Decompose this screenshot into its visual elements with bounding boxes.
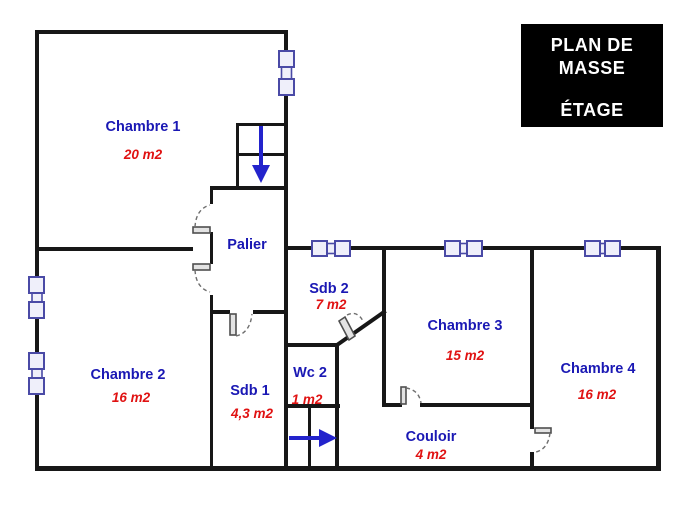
window-icon-chambre2-lower — [29, 353, 44, 394]
room-label-chambre1: Chambre 1 — [106, 119, 181, 135]
door-icon-chambre4 — [535, 428, 551, 452]
room-area-chambre1: 20 m2 — [123, 147, 163, 162]
room-area-sdb2: 7 m2 — [316, 297, 347, 312]
window-pane — [279, 79, 294, 95]
room-labels: Chambre 1 20 m2 Chambre 2 16 m2 Palier S… — [91, 119, 636, 462]
door-icon-sdb2 — [339, 313, 363, 340]
door-arc — [347, 313, 363, 321]
wall-palier-bottom-b — [253, 310, 287, 314]
wall-wc2-top — [286, 343, 338, 347]
title-line-2: MASSE — [559, 58, 626, 78]
room-area-chambre4: 16 m2 — [578, 387, 617, 402]
stairs-up-tread-1 — [236, 123, 287, 126]
window-pane — [29, 353, 44, 369]
room-label-chambre4: Chambre 4 — [561, 361, 636, 377]
door-arc — [536, 433, 550, 452]
window-pane — [467, 241, 482, 256]
window-pane — [445, 241, 460, 256]
wall-exterior-right — [656, 246, 661, 471]
door-leaf — [193, 227, 210, 233]
door-icon-chambre3 — [401, 387, 421, 404]
wall-couloir-chambre4-b — [530, 452, 534, 468]
wall-palier-left-b — [210, 232, 213, 264]
door-arc — [195, 270, 210, 292]
window-pane — [279, 51, 294, 67]
wall-palier-bottom-a — [210, 310, 230, 314]
stairs-right-arrow-icon — [289, 429, 337, 447]
wall-chambre1-chambre2 — [35, 247, 193, 251]
wall-wc2-right — [335, 345, 339, 466]
room-area-chambre2: 16 m2 — [112, 390, 151, 405]
wall-chambre3-couloir-a — [382, 403, 402, 407]
room-label-chambre3: Chambre 3 — [428, 318, 503, 334]
door-icon-palier-sdb1 — [230, 314, 252, 336]
door-icon-palier-chambre2 — [193, 264, 210, 292]
door-icon-palier-chambre1 — [193, 205, 210, 233]
door-arc — [195, 205, 210, 227]
room-label-sdb1: Sdb 1 — [230, 383, 269, 399]
door-arc — [406, 388, 421, 403]
window-pane — [29, 378, 44, 394]
window-icon-chambre4 — [585, 241, 620, 256]
wall-sdb2-chambre3 — [382, 248, 386, 407]
window-icon-sdb2 — [312, 241, 350, 256]
window-pane — [29, 302, 44, 318]
door-arc — [236, 314, 252, 336]
window-pane — [585, 241, 600, 256]
wall-exterior-bottom — [35, 466, 661, 471]
room-label-wc2: Wc 2 — [293, 365, 327, 381]
wall-chambre1-top — [35, 30, 288, 34]
wall-palier-left-c — [210, 295, 213, 468]
floor-plan-drawing: PLAN DE MASSE ÉTAGE Chambre 1 20 m2 Cham… — [0, 0, 697, 506]
room-area-couloir: 4 m2 — [415, 447, 447, 462]
window-pane — [335, 241, 350, 256]
door-leaf — [193, 264, 210, 270]
window-pane — [29, 277, 44, 293]
window-icon-chambre3 — [445, 241, 482, 256]
arrow-head — [319, 429, 337, 447]
title-box: PLAN DE MASSE ÉTAGE — [521, 24, 663, 127]
title-line-1: PLAN DE — [551, 35, 634, 55]
room-area-wc2: 1 m2 — [292, 392, 323, 407]
wall-palier-top — [210, 186, 287, 190]
room-area-sdb1: 4,3 m2 — [230, 406, 274, 421]
window-pane — [312, 241, 327, 256]
room-label-couloir: Couloir — [406, 429, 457, 445]
title-line-3: ÉTAGE — [560, 99, 623, 120]
wall-chambre3-chambre4 — [530, 248, 534, 407]
window-icon-chambre2-upper — [29, 277, 44, 318]
arrow-head — [252, 165, 270, 183]
window-icon-chambre1 — [279, 51, 294, 95]
wall-chambre3-couloir-b — [420, 403, 533, 407]
room-label-palier: Palier — [227, 237, 267, 253]
room-area-chambre3: 15 m2 — [446, 348, 485, 363]
floor-plan-page: PLAN DE MASSE ÉTAGE Chambre 1 20 m2 Cham… — [0, 0, 697, 506]
door-leaf — [535, 428, 551, 433]
window-pane — [605, 241, 620, 256]
room-label-chambre2: Chambre 2 — [91, 367, 166, 383]
door-leaf — [230, 314, 236, 335]
wall-couloir-chambre4-a — [530, 403, 534, 429]
door-leaf — [401, 387, 406, 404]
room-label-sdb2: Sdb 2 — [309, 281, 348, 297]
door-leaf — [339, 317, 355, 340]
